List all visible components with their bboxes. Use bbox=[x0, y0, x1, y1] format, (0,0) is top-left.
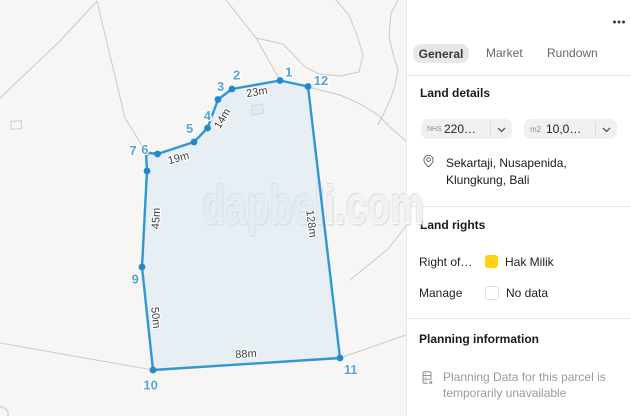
svg-text:50m: 50m bbox=[148, 306, 162, 329]
svg-text:3: 3 bbox=[217, 79, 224, 94]
svg-text:11: 11 bbox=[344, 362, 358, 377]
svg-text:1: 1 bbox=[285, 65, 292, 80]
svg-text:2: 2 bbox=[233, 68, 240, 83]
svg-text:9: 9 bbox=[132, 272, 139, 287]
svg-text:6: 6 bbox=[141, 142, 148, 157]
svg-text:4: 4 bbox=[204, 108, 212, 123]
svg-text:45m: 45m bbox=[150, 208, 163, 230]
svg-text:88m: 88m bbox=[235, 348, 257, 361]
svg-text:7: 7 bbox=[129, 143, 136, 158]
svg-text:5: 5 bbox=[186, 121, 193, 136]
svg-text:10: 10 bbox=[143, 378, 157, 393]
svg-text:12: 12 bbox=[314, 73, 328, 88]
